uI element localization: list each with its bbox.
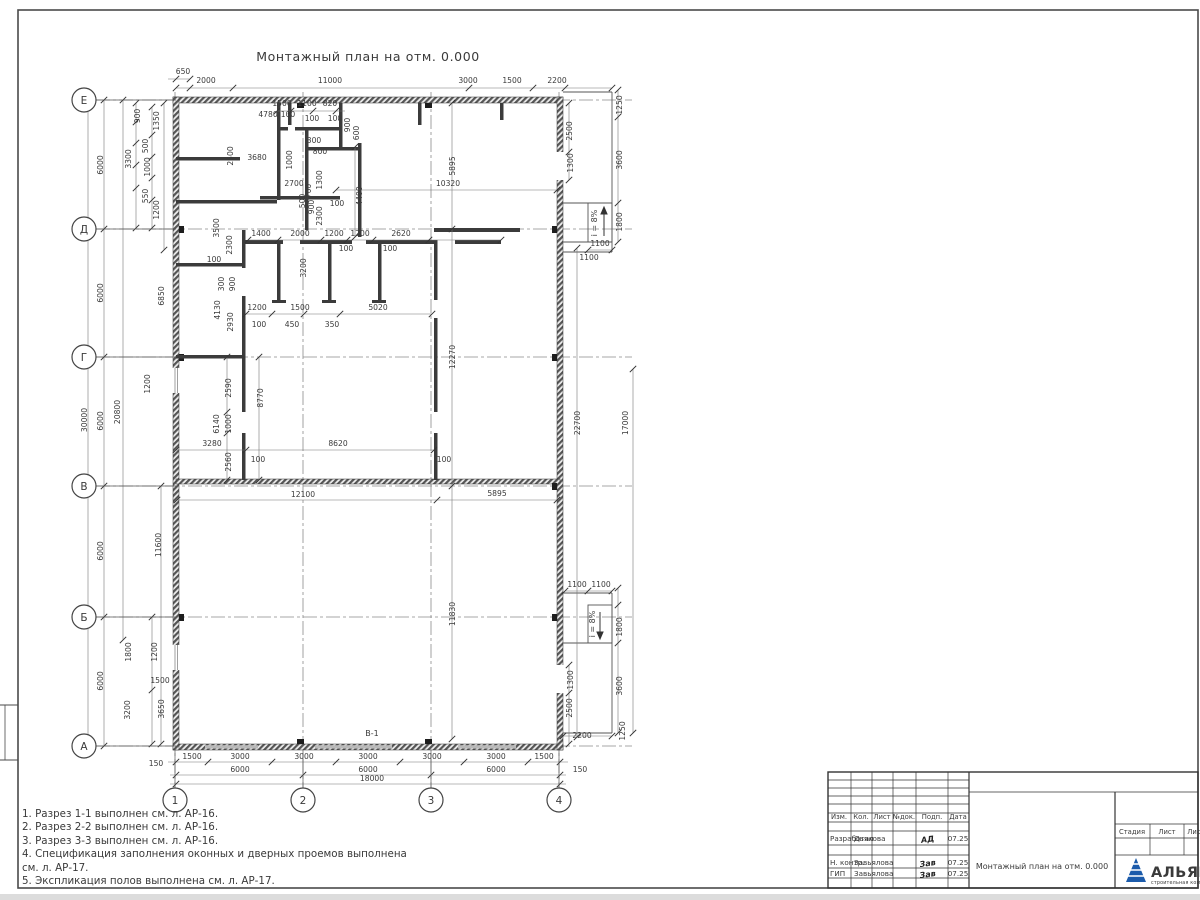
dimension-label: 3000 [294, 752, 313, 761]
dimension-label: 3600 [615, 150, 624, 169]
dimension-label: 900 [343, 118, 352, 133]
dimension-label: 100 [305, 114, 320, 123]
floor-plan-canvas: Монтажный план на отм. 0.000 [0, 0, 1200, 900]
dimension-label: 1200 [143, 374, 152, 393]
dimension-label: 820 [323, 99, 338, 108]
dimension-label: 100 [339, 244, 354, 253]
dimension-label: 1100 [579, 253, 598, 262]
dimension-label: 100 [252, 320, 267, 329]
dimension-label: 1250 [618, 721, 627, 740]
dimension-label: 2000 [290, 229, 309, 238]
dimension-label: 2300 [225, 235, 234, 254]
dimension-label: 1200 [150, 642, 159, 661]
tb-doc-title: Монтажный план на отм. 0.000 [976, 862, 1108, 871]
tb-col-data: Дата [949, 813, 967, 821]
dimension-label: 8620 [328, 439, 347, 448]
dimension-label: 1250 [615, 95, 624, 114]
dimension-label: 2000 [196, 76, 215, 85]
dimension-label: 3000 [486, 752, 505, 761]
tb-col-podp: Подп. [922, 813, 943, 821]
dimension-label: 6000 [96, 541, 105, 560]
dimension-label: 2620 [391, 229, 410, 238]
dimension-label: 1500 [290, 303, 309, 312]
dimension-label: 1200 [152, 200, 161, 219]
dimension-label: 1400 [251, 229, 270, 238]
dimension-label: 900 [228, 277, 237, 292]
plan-annotation: i = 8% [588, 610, 597, 637]
dimension-label: 500 [141, 139, 150, 154]
dimension-label: 2700 [284, 179, 303, 188]
dimension-label: 3000 [358, 752, 377, 761]
dimension-label: 5895 [487, 489, 506, 498]
dimension-label: 3000 [458, 76, 477, 85]
dimension-label: 22700 [573, 411, 582, 435]
dimension-label: 300 [307, 136, 322, 145]
dimension-label: 1500 [150, 676, 169, 685]
dimension-label: 1300 [315, 170, 324, 189]
dimension-label: 100 [437, 455, 452, 464]
grid-axis-label: Б [80, 612, 87, 624]
dimension-label: 1500 [182, 752, 201, 761]
note-line: 4. Спецификация заполнения оконных и две… [22, 848, 382, 861]
dimension-label: 1200 [247, 303, 266, 312]
title-block: Изм. Кол. Лист №док. Подп. Дата Разработ… [828, 772, 1200, 888]
dimension-label: 600 [352, 126, 361, 141]
dimension-label: 1100 [590, 239, 609, 248]
dimension-label: 1300 [566, 670, 575, 689]
dimension-label: 650 [176, 67, 191, 76]
dimension-label: 2300 [315, 206, 324, 225]
dimension-label: 30000 [80, 408, 89, 432]
plan-annotation: i = 8% [590, 209, 599, 236]
plan-labels: В-1i = 8%i = 8% [365, 209, 599, 738]
dimension-label: 6000 [358, 765, 377, 774]
dimension-label: 2560 [224, 452, 233, 471]
plan-title: Монтажный план на отм. 0.000 [256, 49, 480, 64]
note-line: 3. Разрез 3-3 выполнен см. л. АР-16. [22, 835, 382, 848]
dimension-label: 1200 [350, 229, 369, 238]
tb-name-developer: Дьякова [854, 834, 886, 843]
note-line: см. л. АР-17. [22, 862, 382, 875]
dimension-label: 2500 [565, 698, 574, 717]
dimension-label: 6000 [96, 283, 105, 302]
dimension-label: 5895 [448, 156, 457, 175]
dimension-label: 1800 [615, 617, 624, 636]
dimension-label: 6000 [486, 765, 505, 774]
plan-annotation: В-1 [365, 729, 378, 738]
tb-sheet: Лист [1158, 828, 1175, 836]
dimension-label: 4400 [355, 186, 364, 205]
logo-subtitle: строительная компания [1151, 881, 1200, 886]
dimension-label: 12270 [448, 345, 457, 369]
dimension-label: 800 [313, 147, 328, 156]
dimension-label: 3300 [124, 149, 133, 168]
dimension-label: 3000 [230, 752, 249, 761]
dimension-label: 100 [328, 114, 343, 123]
dimension-label: 4780 [258, 110, 277, 119]
dimension-label: 1500 [534, 752, 553, 761]
dimension-label: 1800 [124, 642, 133, 661]
tb-col-ndok: №док. [892, 813, 915, 821]
tb-date-developer: 07.25 [948, 834, 969, 843]
grid-axis-label: 1 [172, 795, 179, 807]
logo-name: АЛЬЯНС [1151, 865, 1200, 881]
grid-axis-label: Д [80, 224, 88, 236]
dimension-label: 150 [573, 765, 588, 774]
company-logo: АЛЬЯНС строительная компания [1124, 858, 1200, 886]
dimension-label: 1800 [615, 212, 624, 231]
dimension-label: 150 [149, 759, 164, 768]
tb-sig-developer: АД [919, 834, 934, 845]
dimension-label: 3500 [212, 218, 221, 237]
dimension-label: 1300 [566, 153, 575, 172]
dimension-label: 100 [383, 244, 398, 253]
dimension-label: 6140 [212, 414, 221, 433]
dimension-label: 5020 [368, 303, 387, 312]
tb-sheets: Листов [1187, 828, 1200, 836]
dimension-label: 3200 [299, 258, 308, 277]
dimension-label: 3280 [202, 439, 221, 448]
dimension-label: 1000 [285, 150, 294, 169]
tb-name-gip: Завьялова [854, 869, 893, 878]
dimension-label: 1350 [152, 111, 161, 130]
dimension-label: 6000 [96, 671, 105, 690]
dimension-label: 1100 [591, 580, 610, 589]
dimension-label: 6000 [96, 411, 105, 430]
walls [172, 92, 612, 750]
dimension-label: 2590 [224, 378, 233, 397]
dimension-label: 18000 [360, 774, 384, 783]
dimension-label: 6850 [157, 286, 166, 305]
pilasters [179, 103, 557, 744]
sheet-frame [0, 10, 1198, 888]
dimension-label: 1000 [143, 157, 152, 176]
tb-sig-ncontr: Зав [919, 858, 936, 869]
tb-date-gip: 07.25 [948, 869, 969, 878]
grid-axis-label: А [80, 741, 88, 753]
tb-sig-gip: Зав [919, 869, 936, 880]
tb-date-ncontr: 07.25 [948, 858, 969, 867]
dimension-label: 11600 [154, 533, 163, 557]
dimension-label: 1500 [502, 76, 521, 85]
dimension-label: 350 [325, 320, 340, 329]
dimension-label: 100 [281, 110, 296, 119]
dimension-label: 10320 [436, 179, 460, 188]
drawing-notes: 1. Разрез 1-1 выполнен см. л. АР-16. 2. … [22, 808, 382, 888]
drawing-sheet: Монтажный план на отм. 0.000 [0, 0, 1200, 900]
grid-axis-label: Г [81, 352, 87, 364]
grid-axis-label: 3 [428, 795, 435, 807]
dimension-label: 1000 [224, 414, 233, 433]
note-line: 2. Разрез 2-2 выполнен см. л. АР-16. [22, 821, 382, 834]
tb-col-kol: Кол. [853, 813, 869, 821]
dimension-label: 2500 [226, 146, 235, 165]
dimension-label: 3000 [422, 752, 441, 761]
dimension-label: 500 [298, 194, 307, 209]
note-line: 1. Разрез 1-1 выполнен см. л. АР-16. [22, 808, 382, 821]
dimension-label: 4130 [213, 300, 222, 319]
dimension-label: 6000 [230, 765, 249, 774]
dimension-label: 6000 [96, 155, 105, 174]
dimension-label: 300 [217, 277, 226, 292]
dimension-label: 20800 [113, 400, 122, 424]
dimension-label: 3600 [615, 676, 624, 695]
dimension-label: 550 [141, 189, 150, 204]
page-edge [0, 894, 1200, 900]
dimension-label: 100 [251, 455, 266, 464]
dimension-label: 2200 [572, 731, 591, 740]
dimension-label: 12100 [291, 490, 315, 499]
dimension-label: 2200 [547, 76, 566, 85]
dimension-label: 100 [330, 199, 345, 208]
dimension-label: 3680 [247, 153, 266, 162]
dimension-label: 17000 [621, 411, 630, 435]
dimension-label: 3200 [123, 700, 132, 719]
tb-stage: Стадия [1119, 828, 1145, 836]
ramp-arrows [597, 207, 607, 639]
dimension-label: 2930 [226, 312, 235, 331]
dimension-label: 1100 [567, 580, 586, 589]
tb-col-list: Лист [873, 813, 890, 821]
tb-name-ncontr: Завьялова [854, 858, 893, 867]
dimension-label: 1200 [324, 229, 343, 238]
tb-col-izm: Изм. [831, 813, 847, 821]
grid-axis-label: Е [81, 95, 88, 107]
note-line: 5. Экспликация полов выполнена см. л. АР… [22, 875, 382, 888]
grid-axis-label: В [80, 481, 87, 493]
dimension-label: 11000 [318, 76, 342, 85]
dimension-label: 1100 [297, 99, 316, 108]
dimension-label: 2500 [565, 121, 574, 140]
dimension-label: 8770 [256, 388, 265, 407]
dimension-label: 100 [207, 255, 222, 264]
dimension-label: 3650 [157, 699, 166, 718]
tb-role-gip: ГИП [830, 869, 845, 878]
dimension-label: 900 [133, 109, 142, 124]
bottom-windows [205, 745, 516, 748]
dimension-label: 1500 [272, 99, 291, 108]
dimension-label: 11830 [448, 602, 457, 626]
grid-axis-label: 2 [300, 795, 307, 807]
grid-axis-label: 4 [556, 795, 563, 807]
dimension-label: 450 [285, 320, 300, 329]
